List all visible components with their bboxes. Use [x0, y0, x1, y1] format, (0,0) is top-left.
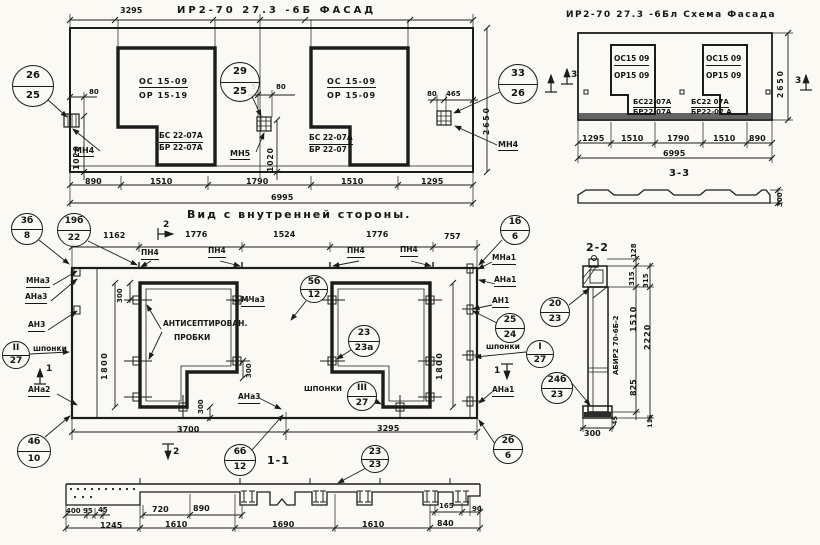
schema-view-lines — [561, 30, 812, 206]
drawing-linework — [0, 0, 820, 545]
section-2-2-lines — [569, 256, 654, 433]
blueprint-sheet: ИР2-70 27.3 -6Б ФАСАДИР2-70 27.3 -6Бл Сх… — [0, 0, 820, 545]
inner-leader-lines — [30, 240, 526, 483]
inner-anchor-marks — [74, 264, 480, 418]
section-3-3-profile — [578, 190, 770, 203]
section-1-1-lines — [63, 478, 483, 532]
rebar-dots — [70, 488, 135, 498]
facade-view-lines — [46, 14, 557, 207]
inner-view-lines — [30, 228, 526, 483]
